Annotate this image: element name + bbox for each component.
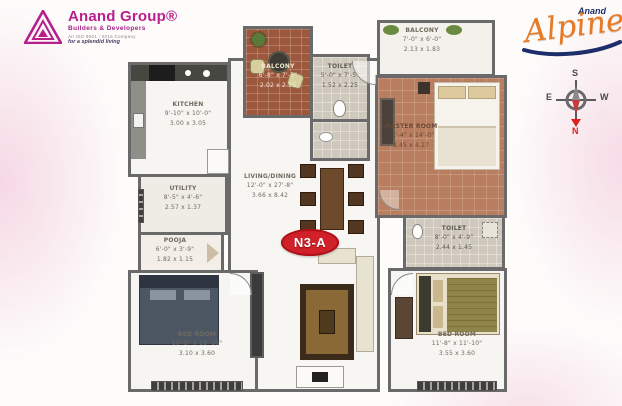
balcony-right-label: BALCONY 7'-0" x 6'-0" 2.13 x 1.83 bbox=[387, 26, 457, 54]
bedroom-right-bed bbox=[416, 273, 500, 335]
pillow bbox=[150, 290, 176, 300]
blanket bbox=[438, 126, 496, 166]
balcony-right-dim-m: 2.13 x 1.83 bbox=[387, 45, 457, 54]
project-logo: Anand Alpine bbox=[520, 2, 622, 60]
kitchen-dim-ft: 9'-10" x 10'-0" bbox=[152, 109, 224, 118]
kitchen-counter-top bbox=[131, 65, 227, 81]
living-rug bbox=[300, 284, 354, 360]
pooja-dim-m: 1.82 x 1.15 bbox=[142, 255, 208, 264]
dining-set bbox=[300, 162, 364, 238]
tv-console bbox=[296, 366, 344, 388]
compass-north-label: N bbox=[572, 126, 579, 136]
bedroom-right-label: BED ROOM 11'-8" x 11'-10" 3.55 x 3.60 bbox=[418, 330, 496, 358]
dining-chair bbox=[348, 220, 364, 234]
compass-icon: S E W N bbox=[544, 68, 608, 138]
dining-chair bbox=[300, 164, 316, 178]
bedroom-left-dim-ft: 10'-2" x 11'-10" bbox=[158, 339, 236, 348]
dining-table bbox=[320, 168, 344, 230]
bedroom-right-name: BED ROOM bbox=[418, 330, 496, 339]
utility-window bbox=[138, 189, 144, 223]
pillow bbox=[433, 280, 443, 302]
balcony-left-dim-m: 2.02 x 2.25 bbox=[245, 81, 311, 90]
living-dim-ft: 12'-0" x 27'-8" bbox=[234, 181, 306, 190]
bedroom-left-window bbox=[151, 381, 243, 391]
pillow bbox=[438, 86, 466, 99]
kitchen-label: KITCHEN 9'-10" x 10'-0" 3.00 x 3.05 bbox=[152, 100, 224, 128]
headboard bbox=[140, 276, 218, 288]
kitchen-dim-m: 3.00 x 3.05 bbox=[152, 119, 224, 128]
balcony-right-name: BALCONY bbox=[387, 26, 457, 35]
pooja-dim-ft: 6'-0" x 3'-9" bbox=[142, 245, 208, 254]
compass-rose bbox=[556, 78, 596, 128]
fridge bbox=[207, 149, 229, 174]
pooja-name: POOJA bbox=[142, 236, 208, 245]
pillow bbox=[184, 290, 210, 300]
blanket bbox=[447, 278, 497, 332]
nightstand bbox=[418, 82, 430, 94]
pooja-label: POOJA 6'-0" x 3'-9" 1.82 x 1.15 bbox=[142, 236, 208, 264]
desk bbox=[395, 297, 413, 339]
kitchen-name: KITCHEN bbox=[152, 100, 224, 109]
floor-plan-flyer: Anand Group® Builders & Developers An IS… bbox=[0, 0, 622, 406]
brand-logo: Anand Group® Builders & Developers An IS… bbox=[24, 8, 224, 62]
pooja-shrine-icon bbox=[207, 243, 219, 263]
bedroom-left-label: BED ROOM 10'-2" x 11'-10" 3.10 x 3.60 bbox=[158, 330, 236, 358]
tv-icon bbox=[312, 372, 328, 382]
dining-chair bbox=[348, 164, 364, 178]
bedroom-left-name: BED ROOM bbox=[158, 330, 236, 339]
project-swoosh-icon bbox=[522, 40, 622, 58]
master-dim-ft: 11'-4" x 14'-0" bbox=[380, 131, 442, 140]
utility-dim-ft: 8'-5" x 4'-6" bbox=[146, 193, 220, 202]
toilet-right-name: TOILET bbox=[422, 224, 486, 233]
balcony-left-name: BALCONY bbox=[245, 62, 311, 71]
pillow bbox=[433, 306, 443, 328]
brand-division: Builders & Developers bbox=[68, 25, 228, 32]
master-dim-m: 3.45 x 4.27 bbox=[380, 141, 442, 150]
headboard bbox=[419, 276, 431, 332]
plant-icon bbox=[252, 33, 265, 46]
sofa bbox=[356, 256, 374, 352]
balcony-right-dim-ft: 7'-0" x 6'-0" bbox=[387, 35, 457, 44]
balcony-left-label: BALCONY 6'-8" x 7'-5" 2.02 x 2.25 bbox=[245, 62, 311, 90]
bedroom-right-dim-m: 3.55 x 3.60 bbox=[418, 349, 496, 358]
master-name: MASTER ROOM bbox=[380, 122, 442, 131]
dining-chair bbox=[348, 192, 364, 206]
compass-west-label: W bbox=[600, 92, 609, 102]
kitchen-sink-icon bbox=[133, 113, 144, 128]
pillow bbox=[468, 86, 496, 99]
toilet-right-label: TOILET 8'-0" x 4'-9" 2.44 x 1.45 bbox=[422, 224, 486, 252]
living-dim-m: 3.66 x 8.42 bbox=[234, 191, 306, 200]
bedroom-right-dim-ft: 11'-8" x 11'-10" bbox=[418, 339, 496, 348]
compass-south-label: S bbox=[572, 68, 578, 78]
living-label: LIVING/DINING 12'-0" x 27'-8" 3.66 x 8.4… bbox=[234, 172, 306, 200]
compass-east-label: E bbox=[546, 92, 552, 102]
master-label: MASTER ROOM 11'-4" x 14'-0" 3.45 x 4.27 bbox=[380, 122, 442, 150]
living-name: LIVING/DINING bbox=[234, 172, 306, 181]
sink-basin-icon bbox=[203, 70, 210, 77]
bedroom-right-window bbox=[417, 381, 497, 391]
balcony-left-dim-ft: 6'-8" x 7'-5" bbox=[245, 71, 311, 80]
bedroom-left-dim-m: 3.10 x 3.60 bbox=[158, 349, 236, 358]
sink-basin-icon bbox=[185, 70, 191, 76]
brand-motto: for a splendid living bbox=[68, 39, 228, 45]
toilet-right-dim-ft: 8'-0" x 4'-9" bbox=[422, 233, 486, 242]
utility-label: UTILITY 8'-5" x 4'-6" 2.57 x 1.37 bbox=[146, 184, 220, 212]
unit-number-badge: N3-A bbox=[281, 229, 339, 256]
brand-name: Anand Group® bbox=[68, 8, 228, 25]
dining-chair bbox=[300, 192, 316, 206]
toilet-wc-icon bbox=[333, 100, 346, 117]
stove-icon bbox=[149, 65, 175, 81]
toilet-top-dim-m: 1.52 x 2.25 bbox=[312, 81, 368, 90]
toilet-right-dim-m: 2.44 x 1.45 bbox=[422, 243, 486, 252]
utility-name: UTILITY bbox=[146, 184, 220, 193]
wash-area bbox=[310, 119, 370, 161]
anand-group-triangle-icon bbox=[24, 10, 62, 44]
utility-dim-m: 2.57 x 1.37 bbox=[146, 203, 220, 212]
master-bed bbox=[434, 82, 500, 170]
tv-unit bbox=[250, 272, 264, 358]
washbasin-icon bbox=[319, 132, 333, 142]
coffee-table bbox=[319, 310, 335, 334]
